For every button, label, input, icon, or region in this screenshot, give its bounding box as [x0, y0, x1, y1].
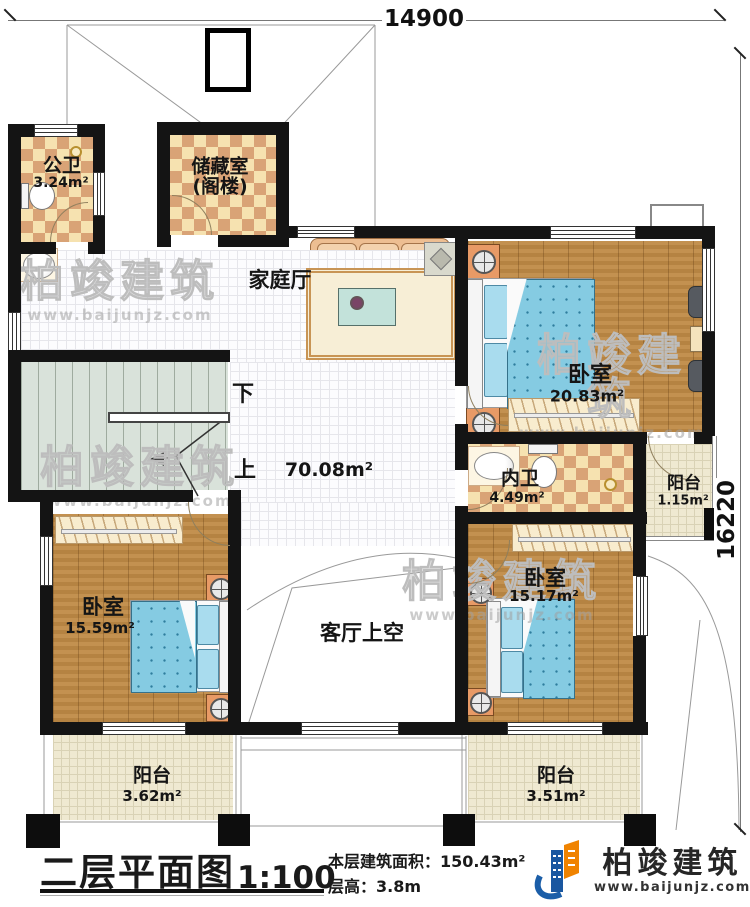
wall: [8, 242, 56, 254]
wall: [633, 432, 646, 524]
wall: [40, 722, 102, 735]
wall: [455, 506, 468, 735]
floor-area-label: 本层建筑面积：: [328, 852, 440, 871]
brand-logo-icon: [534, 838, 586, 904]
bed-pillow: [501, 651, 523, 693]
room-label-public-bath: 公卫: [43, 151, 81, 178]
floor-height-value: 3.8m: [376, 877, 421, 896]
bed-sheet-fold: [169, 601, 195, 691]
room-label-bedroom-tr: 卧室: [568, 357, 612, 389]
room-label-balcony-br: 阳台: [537, 761, 575, 788]
plan-title-row: 二层平面图 1:100: [40, 842, 336, 896]
room-label-balcony-bl: 阳台: [133, 761, 171, 788]
room-label-storage-sub: (阁楼): [192, 172, 247, 199]
flower-decor: [350, 296, 364, 310]
window: [301, 722, 399, 735]
room-label-living-void: 客厅上空: [320, 617, 404, 647]
window: [34, 124, 78, 137]
wall: [40, 586, 53, 722]
wall: [157, 122, 170, 247]
room-label-family-hall: 家庭厅: [249, 264, 312, 294]
floor-plan-canvas: 柏竣建筑 www.baijunjz.com 柏竣建筑 www.baijunjz.…: [0, 0, 750, 907]
bed-pillow: [501, 607, 523, 649]
bath-light: [604, 478, 617, 491]
room-area-balcony-right: 1.15m²: [657, 494, 708, 509]
wall: [702, 226, 715, 248]
wall: [455, 722, 507, 735]
wall: [455, 512, 647, 524]
brand-name: 柏竣建筑: [602, 847, 742, 880]
wall: [8, 490, 193, 502]
floor-height-row: 层高：3.8m: [328, 873, 421, 897]
wall: [8, 356, 21, 502]
bed-sheet-fold: [523, 599, 545, 697]
bed-pillow: [484, 285, 508, 339]
wall: [157, 122, 289, 135]
window: [102, 722, 186, 735]
room-area-bedroom-tr: 20.83m²: [550, 387, 624, 406]
wall: [186, 722, 241, 735]
bed-br: [486, 598, 574, 698]
floor-area-row: 本层建筑面积：150.43m²: [328, 848, 525, 872]
wall: [455, 424, 468, 470]
lamp: [472, 250, 496, 274]
brand-website: www.baijunjz.com: [594, 880, 750, 895]
title-underline-thin: [40, 895, 324, 896]
wardrobe-rail: [514, 413, 634, 418]
wardrobe-rail: [518, 537, 631, 542]
wall: [633, 636, 646, 735]
room-area-bedroom-bl: 15.59m²: [65, 619, 135, 637]
dimension-width: 14900: [382, 6, 466, 32]
dimension-height: 16220: [714, 478, 740, 562]
vanity-sink: [23, 252, 55, 279]
wall: [455, 226, 468, 386]
brand-text-block: 柏竣建筑 www.baijunjz.com: [594, 847, 750, 895]
wall: [241, 722, 301, 735]
stair-up-label: 上: [234, 452, 256, 484]
bed-sheet-fold: [507, 279, 537, 407]
bed-bl: [130, 600, 232, 692]
dimension-line-right: [740, 54, 741, 832]
wall: [93, 124, 105, 172]
toilet-tank: [528, 444, 558, 454]
window: [297, 226, 355, 238]
room-area-bedroom-br: 15.17m²: [509, 587, 579, 605]
room-label-balcony-right: 阳台: [667, 469, 701, 494]
wall: [218, 235, 289, 247]
wall: [40, 502, 53, 536]
window: [40, 536, 53, 586]
room-area-family-hall: 70.08m²: [285, 459, 373, 481]
wall: [633, 524, 646, 576]
brand-logo-block: 柏竣建筑 www.baijunjz.com: [534, 838, 750, 904]
room-area-balcony-bl: 3.62m²: [122, 787, 181, 805]
wardrobe-rail: [61, 529, 177, 534]
wall: [8, 124, 21, 256]
dimension-line-top: [8, 20, 724, 21]
wardrobe: [55, 516, 183, 544]
floor-height-label: 层高：: [328, 877, 376, 896]
room-area-inner-bath: 4.49m²: [489, 490, 544, 506]
room-area-public-bath: 3.24m²: [33, 175, 88, 191]
toilet-tank: [21, 183, 29, 209]
wall: [8, 350, 230, 362]
title-underline: [40, 889, 324, 893]
wall: [157, 235, 171, 247]
window: [93, 172, 105, 216]
coffee-table: [338, 288, 396, 326]
wall: [455, 226, 550, 239]
column: [443, 814, 475, 846]
room-area-balcony-br: 3.51m²: [526, 787, 585, 805]
wall: [603, 722, 648, 735]
stair-handrail: [108, 412, 230, 423]
plan-title: 二层平面图: [40, 842, 235, 896]
bed-pillow: [197, 649, 219, 689]
window: [636, 576, 648, 636]
bed-pillow: [197, 605, 219, 645]
room-label-inner-bath: 内卫: [501, 464, 539, 491]
wall: [455, 432, 647, 444]
floor-area-value: 150.43m²: [440, 852, 525, 871]
window: [507, 722, 603, 735]
lamp: [470, 692, 492, 714]
bed-headboard: [487, 601, 501, 697]
lamp: [470, 582, 492, 604]
room-label-bedroom-bl: 卧室: [82, 591, 124, 621]
stair-down-label: 下: [232, 376, 254, 408]
wall: [702, 332, 715, 432]
wall: [8, 256, 21, 312]
window: [550, 226, 636, 239]
wall: [88, 242, 105, 254]
wardrobe: [512, 524, 637, 552]
window: [702, 248, 715, 332]
